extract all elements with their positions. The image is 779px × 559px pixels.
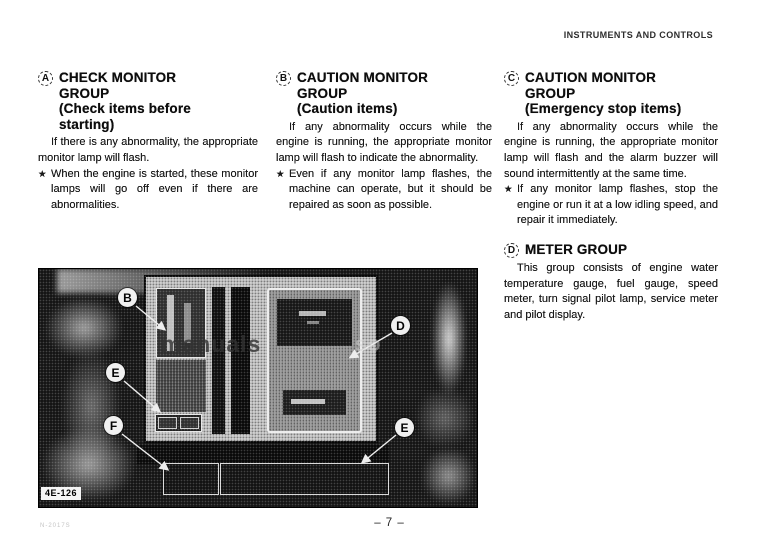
section-meter-group: D METER GROUP This group consists of eng…: [504, 242, 718, 323]
print-code: N-2017S: [40, 523, 71, 529]
section-a-paragraph: If there is any abnormality, the appropr…: [38, 135, 258, 166]
page-number: – 7 –: [0, 517, 779, 529]
section-d-title: METER GROUP: [525, 242, 627, 258]
figure-number-label: 4E-126: [41, 487, 81, 500]
callout-arrows: [39, 269, 478, 508]
section-c-bullet: ★ If any monitor lamp flashes, stop the …: [504, 182, 718, 229]
callout-e-left: E: [106, 363, 125, 382]
section-c-heading: C CAUTION MONITOR GROUP (Emergency stop …: [504, 70, 718, 117]
section-d-heading: D METER GROUP: [504, 242, 718, 258]
scan-watermark-tail: so: [355, 333, 382, 357]
section-b-paragraph: If any abnormality occurs while the engi…: [276, 120, 492, 167]
circled-letter-a: A: [38, 71, 53, 86]
circled-letter-b: B: [276, 71, 291, 86]
column-caution-emergency: C CAUTION MONITOR GROUP (Emergency stop …: [504, 70, 718, 323]
section-c-bullet-text: If any monitor lamp flashes, stop the en…: [517, 183, 718, 226]
section-a-heading: A CHECK MONITOR GROUP (Check items befor…: [38, 70, 258, 132]
manual-page: INSTRUMENTS AND CONTROLS A CHECK MONITOR…: [0, 0, 779, 559]
section-c-title: CAUTION MONITOR GROUP (Emergency stop it…: [525, 70, 681, 117]
star-icon: ★: [38, 167, 47, 183]
callout-f: F: [104, 416, 123, 435]
section-d-paragraph: This group consists of engine water temp…: [504, 261, 718, 323]
star-icon: ★: [504, 182, 513, 198]
scan-watermark: manuals: [161, 331, 261, 358]
circled-letter-c: C: [504, 71, 519, 86]
section-c-paragraph: If any abnormality occurs while the engi…: [504, 120, 718, 182]
column-check-monitor: A CHECK MONITOR GROUP (Check items befor…: [38, 70, 258, 213]
callout-d: D: [391, 316, 410, 335]
section-a-bullet-text: When the engine is started, these monito…: [51, 168, 258, 211]
callout-e-right: E: [395, 418, 414, 437]
running-header: INSTRUMENTS AND CONTROLS: [564, 30, 713, 40]
callout-b: B: [118, 288, 137, 307]
section-b-bullet: ★ Even if any monitor lamp flashes, the …: [276, 167, 492, 214]
section-b-bullet-text: Even if any monitor lamp flashes, the ma…: [289, 168, 492, 211]
section-b-title: CAUTION MONITOR GROUP (Caution items): [297, 70, 428, 117]
circled-letter-d: D: [504, 243, 519, 258]
monitor-panel-photo: B E F D E manuals so 4E-126: [38, 268, 478, 508]
section-b-heading: B CAUTION MONITOR GROUP (Caution items): [276, 70, 492, 117]
column-caution-monitor: B CAUTION MONITOR GROUP (Caution items) …: [276, 70, 492, 213]
star-icon: ★: [276, 167, 285, 183]
section-a-bullet: ★ When the engine is started, these moni…: [38, 167, 258, 214]
section-a-title: CHECK MONITOR GROUP (Check items before …: [59, 70, 191, 132]
